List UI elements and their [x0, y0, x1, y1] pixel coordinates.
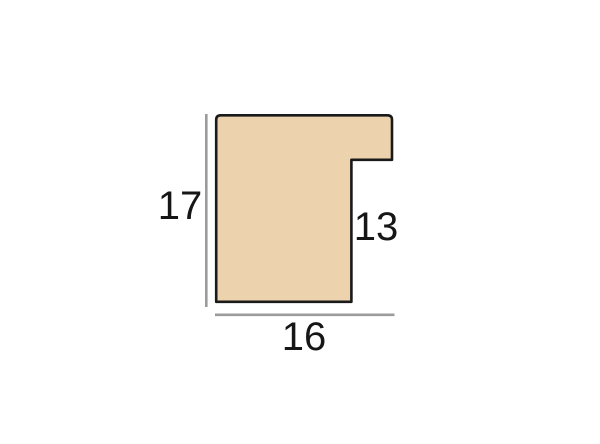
height-dimension-label: 17: [158, 186, 203, 226]
moulding-profile-diagram: 17 13 16: [0, 0, 600, 444]
rebate-dimension-label: 13: [354, 207, 399, 247]
width-dimension-label: 16: [282, 317, 327, 357]
diagram-drawing: [0, 0, 600, 444]
